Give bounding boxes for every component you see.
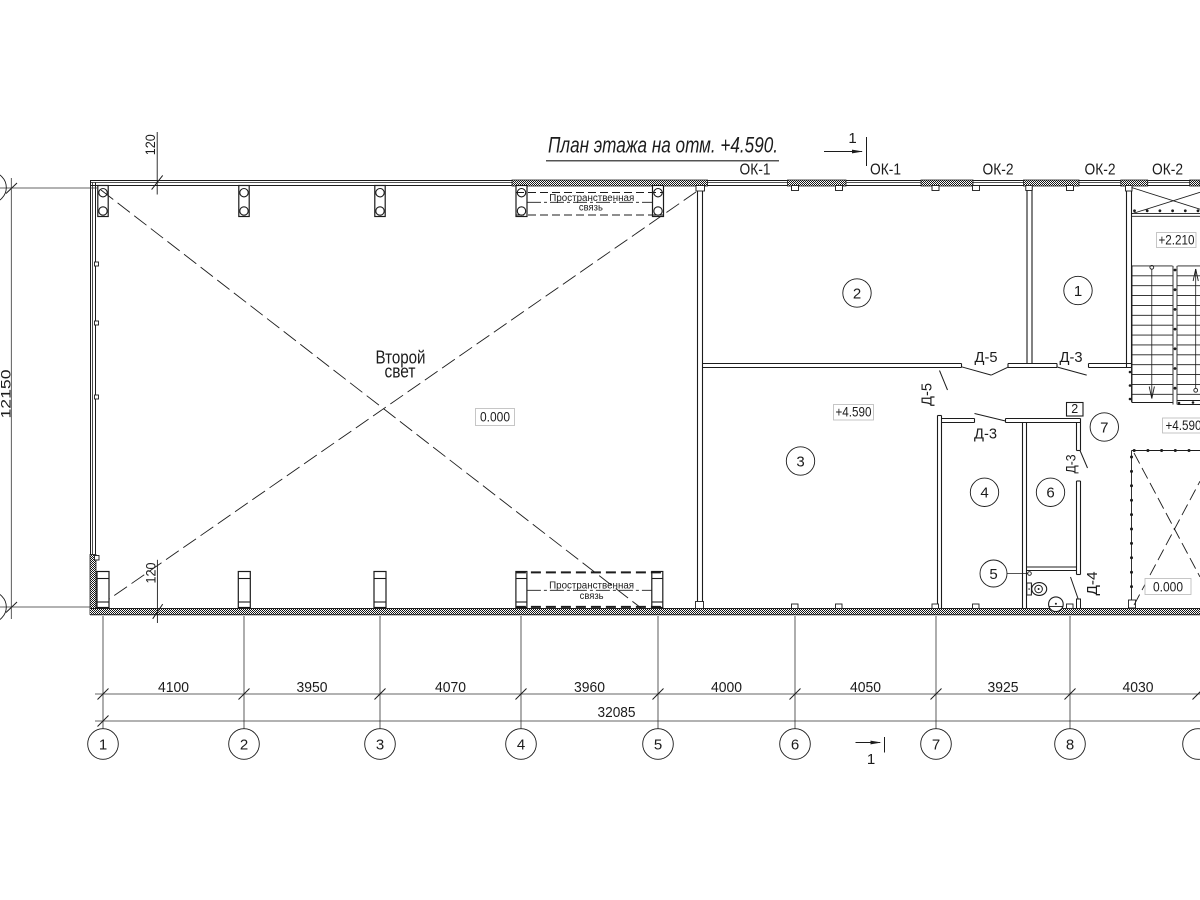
- svg-text:0.000: 0.000: [1153, 580, 1183, 595]
- svg-text:4030: 4030: [1123, 679, 1154, 696]
- svg-text:8: 8: [1066, 736, 1074, 753]
- svg-text:4: 4: [980, 485, 988, 502]
- svg-text:1: 1: [1074, 283, 1082, 300]
- svg-text:Пространственная: Пространственная: [549, 580, 634, 591]
- svg-text:1: 1: [848, 130, 856, 147]
- svg-text:4: 4: [517, 736, 525, 753]
- svg-text:Д-5: Д-5: [920, 383, 936, 406]
- svg-text:3960: 3960: [574, 679, 605, 696]
- svg-text:ОК-2: ОК-2: [983, 162, 1014, 179]
- svg-text:+2.210: +2.210: [1159, 232, 1195, 248]
- svg-text:6: 6: [1046, 485, 1054, 502]
- svg-text:Д-4: Д-4: [1084, 572, 1101, 596]
- svg-text:5: 5: [654, 736, 662, 753]
- svg-text:связь: связь: [579, 203, 603, 214]
- svg-text:Д-3: Д-3: [1064, 455, 1079, 474]
- svg-text:3: 3: [796, 453, 804, 470]
- svg-text:1: 1: [867, 751, 875, 768]
- svg-text:Д-3: Д-3: [974, 427, 997, 443]
- svg-text:3950: 3950: [297, 679, 328, 696]
- svg-text:6: 6: [791, 736, 799, 753]
- svg-text:120: 120: [143, 563, 158, 584]
- svg-text:0.000: 0.000: [480, 410, 510, 425]
- svg-text:3925: 3925: [988, 679, 1019, 696]
- svg-text:Д-3: Д-3: [1060, 350, 1083, 366]
- svg-text:4100: 4100: [158, 679, 189, 696]
- svg-text:3: 3: [376, 736, 384, 753]
- svg-text:2: 2: [1071, 402, 1078, 416]
- svg-text:+4.590: +4.590: [1166, 418, 1200, 433]
- svg-text:120: 120: [143, 134, 158, 155]
- svg-text:ОК-2: ОК-2: [1152, 162, 1183, 179]
- svg-text:1: 1: [99, 736, 107, 753]
- svg-text:7: 7: [932, 736, 940, 753]
- svg-text:5: 5: [989, 566, 997, 583]
- svg-text:7: 7: [1100, 419, 1108, 436]
- svg-text:ОК-1: ОК-1: [740, 162, 771, 179]
- svg-text:12150: 12150: [0, 370, 14, 419]
- svg-text:4050: 4050: [850, 679, 881, 696]
- svg-text:4000: 4000: [711, 679, 742, 696]
- svg-text:связь: связь: [580, 591, 604, 602]
- svg-text:2: 2: [853, 285, 861, 302]
- svg-text:ОК-1: ОК-1: [870, 162, 901, 179]
- svg-text:ОК-2: ОК-2: [1085, 162, 1116, 179]
- svg-text:+4.590: +4.590: [836, 405, 872, 420]
- svg-text:Д-5: Д-5: [975, 350, 998, 366]
- svg-text:4070: 4070: [435, 679, 466, 696]
- svg-text:План этажа на отм. +4.590.: План этажа на отм. +4.590.: [548, 133, 778, 158]
- svg-text:свет: свет: [385, 362, 416, 382]
- svg-text:32085: 32085: [598, 704, 636, 721]
- svg-text:2: 2: [240, 736, 248, 753]
